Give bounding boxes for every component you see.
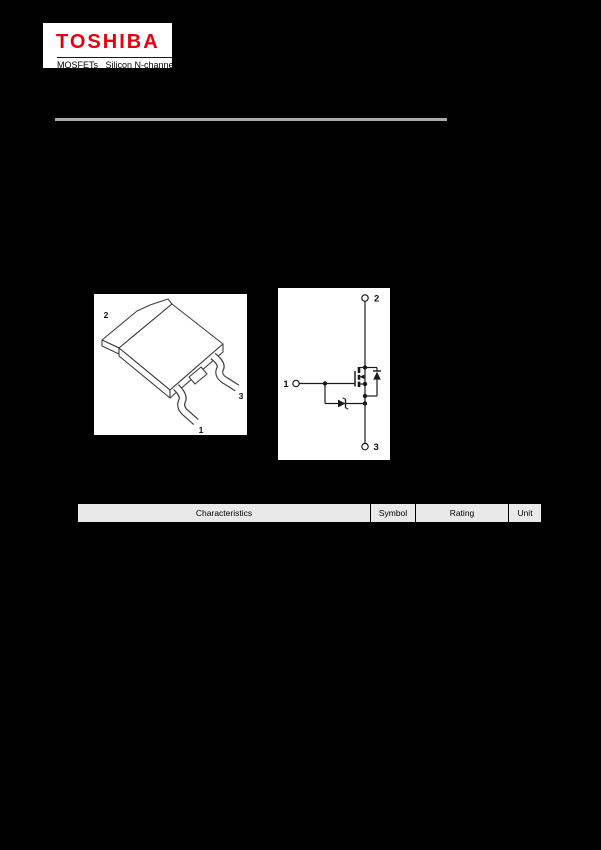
package-drawing-figure: 2 3 1 — [94, 294, 247, 435]
logo-underline — [57, 57, 172, 58]
datasheet-page: TOSHIBA MOSFETs Silicon N-channel — [0, 0, 601, 850]
package-pin3-label: 3 — [239, 391, 244, 401]
table-header-unit: Unit — [509, 504, 541, 522]
terminal-2-node — [362, 295, 368, 301]
toshiba-logo-block: TOSHIBA MOSFETs Silicon N-channel — [43, 23, 172, 68]
table-header-characteristics: Characteristics — [78, 504, 371, 522]
body-diode — [373, 371, 381, 380]
table-header-rating: Rating — [416, 504, 509, 522]
ratings-table-header-row: Characteristics Symbol Rating Unit — [77, 503, 542, 523]
package-lead-1 — [176, 387, 196, 422]
toshiba-logo: TOSHIBA — [56, 32, 160, 52]
package-isometric-icon: 2 3 1 — [94, 294, 247, 435]
table-header-symbol: Symbol — [371, 504, 416, 522]
circuit-terminal1-label: 1 — [283, 379, 289, 390]
section-divider-rule — [55, 118, 447, 121]
circuit-terminal3-label: 3 — [374, 442, 379, 453]
package-lead-3 — [213, 356, 237, 388]
terminal-3-node — [362, 443, 368, 449]
internal-circuit-figure: 2 1 3 — [278, 288, 390, 460]
circuit-terminal2-label: 2 — [374, 294, 379, 305]
package-pin2-label: 2 — [104, 310, 109, 320]
terminal-1-node — [293, 380, 299, 386]
package-pin1-label: 1 — [199, 425, 204, 435]
mosfet-schematic-icon: 2 1 3 — [278, 288, 390, 460]
logo-subtitle: MOSFETs Silicon N-channel — [57, 60, 172, 68]
